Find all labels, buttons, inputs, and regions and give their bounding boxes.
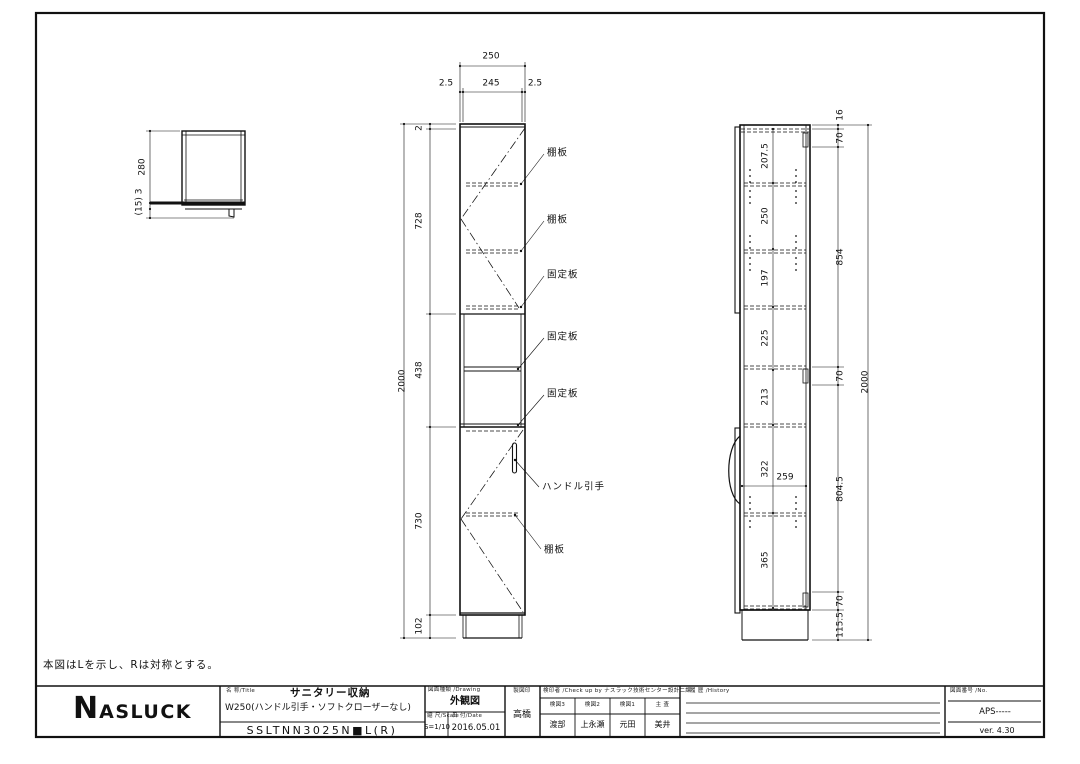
side-dim-197: 197	[762, 269, 771, 286]
check-col-name-1: 渡部	[550, 721, 566, 729]
front-view-outline	[460, 124, 525, 615]
check-col-name-4: 美井	[655, 721, 671, 729]
front-door-swing-lines	[461, 128, 525, 612]
side-dim-213: 213	[762, 388, 771, 405]
date-value: 2016.05.01	[452, 724, 501, 733]
side-dim-225: 225	[762, 329, 771, 346]
front-dim-width-overall: 250	[482, 53, 499, 62]
logo-rest: ASLUCK	[99, 703, 192, 722]
side-bracket-mid	[803, 369, 808, 383]
part-label-fixed-3: 固定板	[547, 389, 579, 399]
check-col-label-1: 検図3	[550, 703, 565, 709]
history-label: 履 歴 /History	[690, 689, 730, 695]
front-dim-gap-right: 2.5	[528, 80, 542, 89]
drafter-name: 高橋	[513, 711, 531, 720]
side-rdim-854: 854	[837, 248, 846, 265]
check-col-name-3: 元田	[620, 721, 636, 729]
side-dim-322: 322	[762, 460, 771, 477]
drafter-label: 製図印	[513, 689, 530, 695]
part-label-handle: ハンドル引手	[542, 482, 605, 492]
drawing-linework	[0, 0, 1080, 764]
part-label-fixed-2: 固定板	[547, 332, 579, 342]
front-dim-gap-left: 2.5	[439, 80, 453, 89]
side-bracket-bottom	[803, 593, 808, 607]
logo-initial: N	[73, 697, 99, 721]
history-ruled-lines	[686, 703, 940, 733]
front-dim-overall-height: 2000	[399, 370, 408, 393]
side-rdim-70a: 70	[837, 132, 846, 143]
part-label-fixed-1: 固定板	[547, 270, 579, 280]
plan-view-outline	[182, 131, 245, 205]
side-view-outline	[740, 125, 810, 610]
front-dim-top-panel: 2	[416, 125, 425, 131]
side-hidden-lines	[741, 129, 809, 609]
side-rdim-70b: 70	[837, 370, 846, 381]
part-label-shelf-1: 棚板	[547, 148, 568, 158]
check-label: 検印者 /Check up by ナスラック技術センター設計二課	[543, 689, 691, 695]
part-label-shelf-3: 棚板	[544, 545, 565, 555]
part-label-shelf-2: 棚板	[547, 215, 568, 225]
name-label: 名 称/Title	[226, 689, 255, 695]
front-dim-width-inner: 245	[482, 80, 499, 89]
technical-drawing-page: 本図はLを示し、Rは対称とする。 NASLUCK 名 称/Title サニタリー…	[0, 0, 1080, 764]
side-dim-250: 250	[762, 207, 771, 224]
product-spec: W250(ハンドル引手・ソフトクローザーなし)	[225, 704, 411, 713]
side-dim-365: 365	[762, 551, 771, 568]
scale-value: S=1/10	[424, 724, 450, 731]
drawing-type: 外観図	[450, 697, 480, 707]
side-rdim-70c: 70	[837, 595, 846, 606]
side-dim-overall-height: 2000	[862, 371, 871, 394]
side-rdim-16: 16	[837, 109, 846, 120]
plan-foot	[229, 209, 234, 217]
plan-dim-base: (15) 3	[136, 188, 145, 215]
drawing-note: 本図はLを示し、Rは対称とする。	[43, 660, 219, 671]
side-bracket-top	[803, 133, 808, 147]
front-hidden-shelf-lines	[466, 183, 519, 516]
side-rdim-804: 804.5	[837, 476, 846, 502]
drawing-type-label: 図面種類 /Drawing	[428, 688, 480, 694]
front-dim-upper-door: 728	[416, 212, 425, 229]
model-number: SSLTNN3025N■L(R)	[247, 725, 398, 736]
side-handle-arc	[729, 436, 740, 504]
side-dim-depth-259: 259	[776, 474, 793, 483]
drawing-number: APS-----	[979, 708, 1011, 717]
product-name: サニタリー収納	[290, 688, 371, 699]
drawing-number-label: 図面番号 /No.	[950, 689, 987, 695]
front-dim-base: 102	[416, 617, 425, 634]
front-dim-lower-door: 730	[416, 512, 425, 529]
date-label: 日 付/Date	[452, 714, 482, 720]
drawing-version: ver. 4.30	[979, 727, 1014, 735]
front-dim-open-section: 438	[416, 361, 425, 378]
check-col-name-2: 上永瀬	[581, 721, 605, 729]
check-col-label-2: 検図2	[585, 703, 600, 709]
sheet-border	[36, 13, 1044, 737]
check-col-label-3: 検図1	[620, 703, 635, 709]
front-handle	[513, 443, 517, 473]
nasluck-logo: NASLUCK	[73, 697, 192, 722]
side-dim-207: 207.5	[762, 143, 771, 169]
side-rdim-115: 115.5	[837, 612, 846, 638]
plan-dim-depth: 280	[139, 158, 148, 175]
check-col-label-4: 主 査	[656, 703, 670, 709]
